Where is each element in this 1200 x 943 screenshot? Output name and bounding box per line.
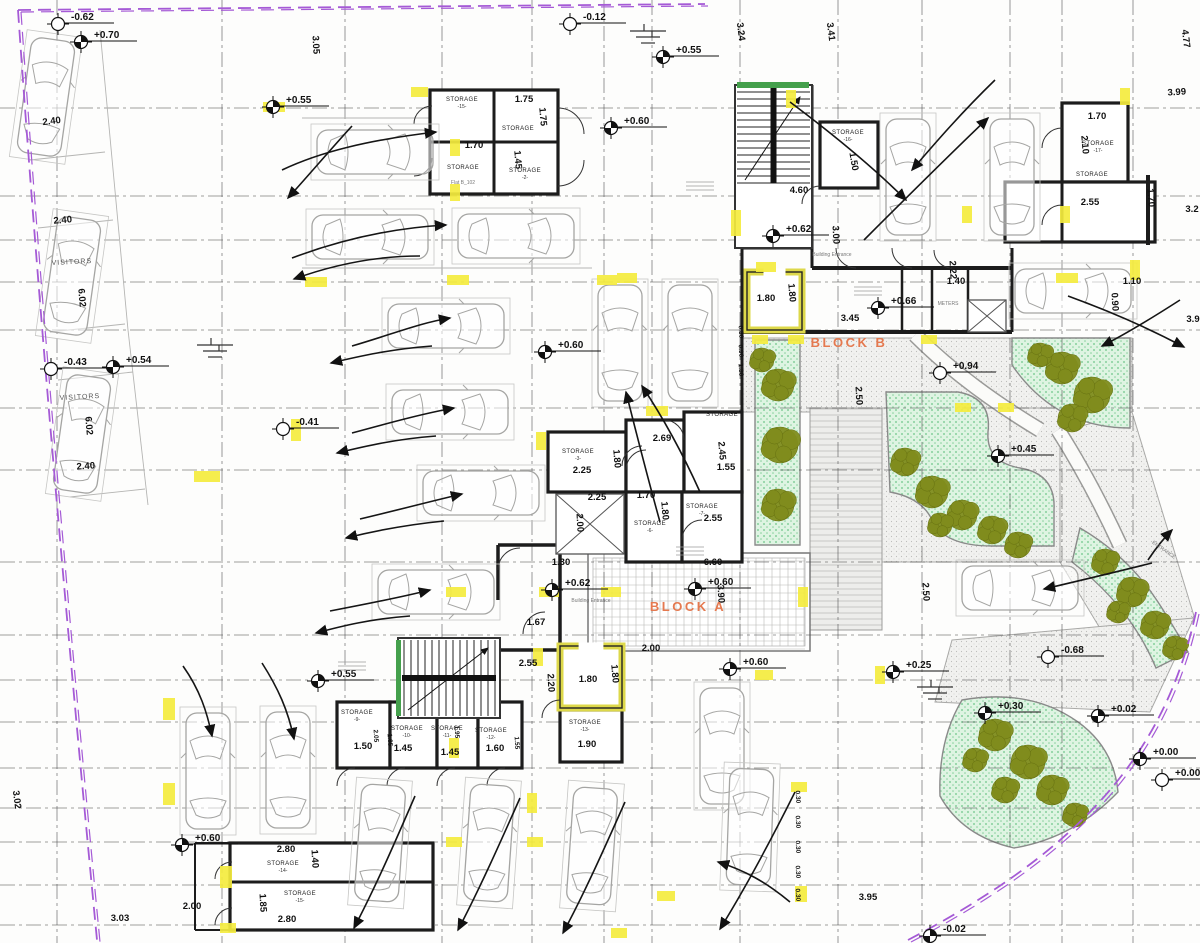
- yellow-highlight: [755, 670, 773, 680]
- yellow-highlight: [752, 335, 768, 344]
- dimension-label: 3.95: [859, 892, 878, 903]
- yellow-highlight: [1120, 88, 1130, 105]
- tree-foliage: [1002, 791, 1014, 803]
- dimension-label: 1.70: [1088, 111, 1107, 122]
- dimension-label: 1.60: [486, 743, 505, 754]
- tree-foliage: [937, 526, 948, 537]
- dimension-label: 1.95: [453, 725, 461, 738]
- tree-foliage: [774, 386, 788, 400]
- dimension-label: 1.10: [1123, 276, 1142, 287]
- dimension-label: 1.80: [610, 449, 623, 468]
- dimension-label: 1.55: [717, 462, 736, 473]
- yellow-highlight: [731, 210, 741, 236]
- tree-foliage: [1041, 776, 1055, 790]
- car-body: [423, 471, 539, 515]
- parked-car: [372, 564, 500, 620]
- level-value: +0.55: [286, 95, 312, 106]
- dimension-label: 0.30: [794, 815, 802, 828]
- level-value: +0.45: [1011, 444, 1037, 455]
- yellow-highlight: [527, 793, 537, 813]
- tree-foliage: [1015, 746, 1030, 761]
- dimension-label: 1.90: [578, 739, 597, 750]
- storage-label: STORAGE: [509, 168, 541, 174]
- dimension-label: 4.77: [1179, 29, 1192, 49]
- car-body: [668, 285, 712, 401]
- storage-room: [684, 412, 742, 492]
- yellow-highlight: [446, 837, 462, 847]
- car-body: [378, 570, 494, 614]
- storage-label: STORAGE: [267, 861, 299, 867]
- parked-car: [956, 560, 1084, 616]
- tree-foliage: [774, 506, 788, 520]
- car-body: [392, 390, 508, 434]
- car-body: [566, 787, 618, 906]
- car-body: [458, 214, 574, 258]
- dimension-label: 3.24: [734, 22, 747, 42]
- dimension-label: 1.40: [947, 276, 966, 287]
- level-value: -0.02: [943, 924, 966, 935]
- dimension-label: METERS: [938, 301, 960, 307]
- dimension-label: Building Entrance: [812, 252, 851, 258]
- dimension-label: 0.30: [794, 790, 802, 803]
- yellow-highlight: [955, 403, 971, 412]
- tree-foliage: [1066, 804, 1077, 815]
- tree-foliage: [759, 361, 770, 372]
- yellow-highlight: [756, 262, 776, 272]
- storage-label: STORAGE: [502, 126, 534, 132]
- dimension-label: 2.80: [277, 844, 296, 855]
- yellow-highlight: [305, 277, 327, 287]
- level-value: +0.54: [126, 355, 152, 366]
- dimension-label: 1.80: [785, 283, 798, 302]
- dimension-label: -9-: [354, 717, 360, 723]
- storage-label: STORAGE: [569, 720, 601, 726]
- storage-label: STORAGE: [475, 728, 507, 734]
- dimension-label: 6.60: [704, 557, 723, 568]
- dimension-label: -11-: [443, 733, 452, 739]
- dimension-label: 3.03: [111, 913, 130, 924]
- level-value: -0.43: [64, 357, 87, 368]
- dimension-label: 2.69: [653, 433, 672, 444]
- dimension-label: 1.67: [527, 617, 546, 628]
- level-value: +0.30: [998, 701, 1024, 712]
- block-title: BLOCK A: [650, 599, 726, 614]
- storage-label: STORAGE: [1076, 172, 1108, 178]
- floor-plan-page: Ground floor parking and site plan with …: [0, 0, 1200, 943]
- dimension-label: 2.40: [42, 115, 62, 128]
- dimension-label: 3.9: [1186, 314, 1199, 325]
- storage-label: STORAGE: [446, 97, 478, 103]
- tree-foliage: [966, 749, 977, 760]
- dimension-label: 1.65: [386, 733, 394, 746]
- tree-foliage: [989, 531, 1002, 544]
- car-body: [990, 119, 1034, 235]
- yellow-highlight: [617, 273, 637, 283]
- level-value: +0.60: [558, 340, 584, 351]
- tree-foliage: [995, 778, 1007, 790]
- dimension-label: 2.55: [704, 513, 723, 524]
- car-body: [962, 566, 1078, 610]
- tree-foliage: [1121, 578, 1135, 592]
- dimension-label: 3.05: [310, 35, 322, 55]
- tree-foliage: [1152, 626, 1165, 639]
- dimension-label: 1.85: [257, 893, 269, 913]
- yellow-highlight: [536, 432, 546, 450]
- dimension-label: 1.30: [552, 557, 571, 568]
- parked-car: [386, 384, 514, 440]
- ramp-hatch-area: [810, 408, 882, 630]
- tree-foliage: [1095, 550, 1107, 562]
- dimension-label: 1.80: [608, 664, 621, 683]
- car-body: [463, 784, 515, 903]
- tree-foliage: [1008, 533, 1020, 545]
- dimension-label: 3.00: [830, 225, 842, 244]
- dimension-label: -2-: [522, 175, 528, 181]
- dimension-label: 2.50: [853, 386, 865, 405]
- storage-room: [560, 710, 622, 762]
- yellow-highlight: [998, 403, 1014, 412]
- yellow-highlight: [220, 923, 236, 933]
- tree-foliage: [1166, 637, 1177, 648]
- tree-foliage: [776, 446, 792, 462]
- yellow-highlight: [411, 87, 428, 97]
- dimension-label: 2.25: [588, 492, 607, 503]
- level-value: +0.25: [906, 660, 932, 671]
- dimension-label: -17-: [1094, 148, 1103, 154]
- storage-label: STORAGE: [447, 165, 479, 171]
- tree-foliage: [1062, 405, 1075, 418]
- dimension-label: -10-: [403, 733, 412, 739]
- dimension-label: 2.00: [642, 643, 661, 654]
- storage-label: STORAGE: [634, 521, 666, 527]
- dimension-label: -16-: [844, 137, 853, 143]
- parked-car: [452, 208, 580, 264]
- level-value: +0.70: [94, 30, 120, 41]
- tree-foliage: [982, 517, 995, 530]
- striped-ramp-layer: [810, 408, 882, 630]
- yellow-highlight: [194, 471, 220, 482]
- yellow-highlight: [962, 206, 972, 223]
- yellow-highlight: [163, 783, 175, 805]
- yellow-highlight: [597, 275, 617, 285]
- yellow-highlight: [527, 837, 543, 847]
- dimension-label: -15-: [458, 104, 467, 110]
- tree-foliage: [766, 490, 780, 504]
- tree-foliage: [1024, 763, 1039, 778]
- storage-room: [682, 492, 742, 562]
- yellow-highlight: [447, 275, 469, 285]
- dimension-label: 3.02: [10, 790, 23, 810]
- storage-label: STORAGE: [706, 412, 738, 418]
- parked-car: [180, 707, 236, 835]
- stair-divider: [771, 88, 777, 183]
- parked-car: [382, 298, 510, 354]
- parked-car: [592, 279, 648, 407]
- dimension-label: 3.99: [1167, 86, 1186, 98]
- tree-foliage: [767, 428, 783, 444]
- car-body: [886, 119, 930, 235]
- yellow-highlight: [163, 698, 175, 720]
- dimension-label: 0.90: [1109, 292, 1121, 311]
- yellow-highlight: [220, 866, 232, 888]
- level-value: +0.66: [891, 296, 917, 307]
- dimension-label: -6-: [647, 528, 653, 534]
- dimension-label: 6.02: [82, 416, 95, 435]
- dimension-label: 2.25: [573, 465, 592, 476]
- tree-foliage: [920, 477, 934, 491]
- dimension-label: 1.70: [1144, 188, 1157, 207]
- tree-foliage: [1069, 419, 1082, 432]
- yellow-highlight: [1056, 273, 1078, 283]
- tree-foliage: [951, 501, 965, 515]
- tree-foliage: [928, 493, 942, 507]
- tree-foliage: [766, 370, 780, 384]
- level-value: +0.94: [953, 361, 979, 372]
- marker-circle: [277, 423, 290, 436]
- car-body: [388, 304, 504, 348]
- dimension-label: 2.55: [519, 658, 538, 669]
- yellow-highlight: [611, 928, 627, 938]
- dimension-label: 1.80: [757, 293, 776, 304]
- level-value: -0.62: [71, 12, 94, 23]
- yellow-highlight: [875, 666, 885, 684]
- dimension-label: 2.80: [278, 914, 297, 925]
- marker-circle: [1042, 651, 1055, 664]
- yellow-highlight: [921, 335, 937, 344]
- tree-foliage: [958, 516, 972, 530]
- dimension-label: 0.30: [794, 888, 802, 901]
- dimension-label: -13-: [581, 727, 590, 733]
- staircase: [398, 638, 500, 718]
- storage-label: STORAGE: [284, 891, 316, 897]
- level-value: -0.41: [296, 417, 319, 428]
- marker-circle: [1156, 774, 1169, 787]
- floor-plan-canvas: Ground floor parking and site plan with …: [0, 0, 1200, 943]
- tree-foliage: [1015, 546, 1027, 558]
- dimension-label: 2.20: [545, 673, 557, 692]
- yellow-highlight: [1060, 206, 1070, 223]
- dimension-label: 3.45: [841, 313, 860, 324]
- dimension-label: 2.45: [715, 441, 728, 461]
- car-body: [266, 712, 310, 828]
- yellow-highlight: [450, 139, 460, 156]
- car-body: [354, 784, 406, 903]
- tree-foliage: [931, 514, 942, 525]
- tree-foliage: [1031, 344, 1042, 355]
- dimension-label: 2.00: [183, 901, 202, 912]
- dimension-label: 1.70: [637, 490, 656, 501]
- dimension-label: 2.55: [1081, 197, 1100, 208]
- tree-foliage: [1145, 612, 1158, 625]
- dimension-label: 3.41: [824, 22, 837, 42]
- level-value: +0.60: [195, 833, 221, 844]
- dimension-label: 2.50: [920, 582, 932, 601]
- dimension-label: 1.40: [309, 849, 321, 868]
- level-value: +0.55: [676, 45, 702, 56]
- tree-foliage: [1037, 356, 1048, 367]
- dimension-label: 1.45: [394, 743, 413, 754]
- dimension-label: 1.70: [465, 140, 484, 151]
- dimension-label: Building Entrance: [571, 598, 610, 604]
- dimension-label: 3.2: [1185, 204, 1198, 215]
- marker-circle: [934, 367, 947, 380]
- storage-label: STORAGE: [341, 710, 373, 716]
- dimension-label: -15-: [296, 898, 305, 904]
- dimension-label: -3-: [575, 456, 581, 462]
- yellow-highlight: [446, 587, 466, 597]
- dimension-label: 1.75: [515, 94, 534, 105]
- tree-foliage: [1058, 369, 1072, 383]
- parked-car: [662, 279, 718, 407]
- tree-foliage: [1088, 396, 1104, 412]
- yellow-highlight: [450, 184, 460, 201]
- dimension-label: 1.45: [441, 747, 460, 758]
- level-value: +0.00: [1153, 747, 1179, 758]
- car-body: [312, 215, 428, 259]
- level-value: +0.60: [743, 657, 769, 668]
- tree-foliage: [753, 349, 764, 360]
- yellow-highlight: [798, 587, 808, 607]
- dimension-label: 4.60: [790, 185, 809, 196]
- level-value: +0.02: [1111, 704, 1137, 715]
- tree-foliage: [895, 449, 908, 462]
- marker-circle: [564, 18, 577, 31]
- dimension-label: 1.75: [536, 107, 549, 127]
- level-value: -0.12: [583, 12, 606, 23]
- storage-label: STORAGE: [686, 504, 718, 510]
- dimension-label: 1.80: [658, 501, 671, 520]
- tree-foliage: [1172, 649, 1183, 660]
- yellow-highlight: [788, 335, 804, 344]
- storage-label: STORAGE: [1082, 141, 1114, 147]
- entry-threshold: [396, 640, 401, 716]
- dimension-label: 1.50: [354, 741, 373, 752]
- storage-label: STORAGE: [562, 449, 594, 455]
- tree-foliage: [991, 736, 1005, 750]
- dimension-label: -14-: [279, 868, 288, 874]
- parked-car: [260, 706, 316, 834]
- car-body: [598, 285, 642, 401]
- storage-label: STORAGE: [832, 130, 864, 136]
- marker-circle: [45, 363, 58, 376]
- marker-circle: [52, 18, 65, 31]
- dimension-label: -12-: [487, 735, 496, 741]
- level-value: -0.68: [1061, 645, 1084, 656]
- dimension-label: 0.30: [794, 840, 802, 853]
- entry-threshold: [737, 82, 809, 88]
- level-value: +0.00: [1175, 768, 1200, 779]
- storage-room: [626, 420, 684, 492]
- level-value: +0.60: [624, 116, 650, 127]
- storage-label: STORAGE: [391, 726, 423, 732]
- car-body: [186, 713, 230, 829]
- dimension-label: 1.30: [737, 363, 745, 376]
- car-body: [317, 130, 433, 174]
- tree-foliage: [1115, 613, 1125, 623]
- dimension-label: 0.30: [794, 865, 802, 878]
- parked-car: [417, 465, 545, 521]
- tree-foliage: [972, 761, 983, 772]
- level-value: +0.62: [786, 224, 812, 235]
- tree-foliage: [1048, 791, 1062, 805]
- dimension-label: 0.90: [737, 344, 745, 357]
- parked-car: [984, 113, 1040, 241]
- tree-foliage: [1128, 593, 1142, 607]
- tree-foliage: [902, 463, 915, 476]
- dimension-label: 1.80: [579, 674, 598, 685]
- dimension-label: 2.05: [372, 729, 380, 742]
- tree-foliage: [1079, 378, 1095, 394]
- dimension-label: 6.02: [75, 288, 88, 307]
- dimension-label: 2.00: [574, 513, 586, 532]
- yellow-highlight: [657, 891, 675, 901]
- block-title: BLOCK B: [811, 335, 888, 350]
- level-value: +0.55: [331, 669, 357, 680]
- storage-room: [230, 843, 433, 930]
- tree-foliage: [1110, 602, 1120, 612]
- dimension-label: 1.55: [513, 736, 521, 749]
- level-value: +0.62: [565, 578, 591, 589]
- dimension-label: Flat B_102: [451, 180, 475, 186]
- dimension-label: 2.40: [76, 460, 95, 472]
- dimension-label: 2.40: [53, 214, 72, 227]
- dimension-label: 0.30: [737, 325, 745, 338]
